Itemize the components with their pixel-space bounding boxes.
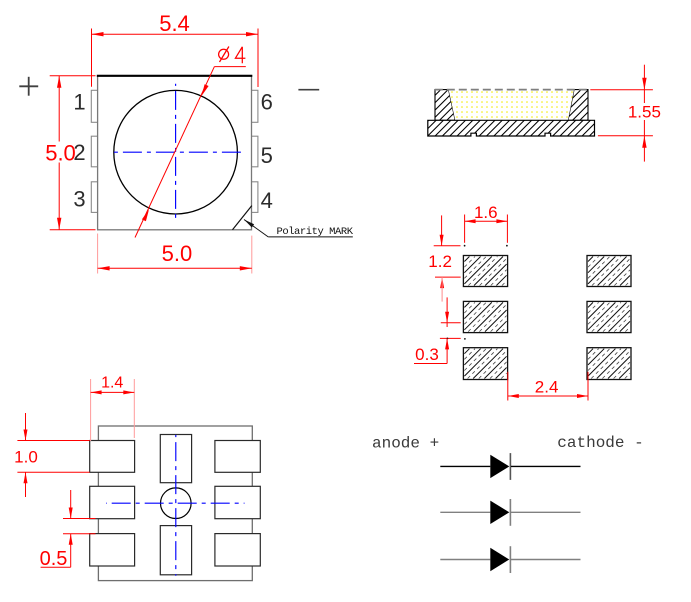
- svg-text:5: 5: [261, 143, 273, 168]
- svg-text:5.0: 5.0: [162, 241, 193, 266]
- svg-text:1: 1: [73, 89, 85, 114]
- svg-text:4: 4: [261, 188, 273, 213]
- svg-text:1.4: 1.4: [101, 375, 123, 392]
- svg-text:5.0: 5.0: [45, 140, 76, 165]
- svg-text:0.3: 0.3: [415, 345, 439, 364]
- svg-text:cathode -: cathode -: [557, 434, 643, 452]
- svg-text:anode +: anode +: [372, 435, 439, 453]
- svg-text:1.2: 1.2: [428, 252, 452, 271]
- svg-text:1.55: 1.55: [628, 103, 661, 122]
- svg-text:2.4: 2.4: [535, 378, 559, 397]
- svg-text:6: 6: [261, 90, 273, 115]
- svg-text:1.6: 1.6: [474, 203, 498, 222]
- svg-text:2: 2: [73, 140, 85, 165]
- svg-text:5.4: 5.4: [159, 11, 190, 36]
- svg-text:3: 3: [73, 186, 85, 211]
- svg-text:1.0: 1.0: [14, 448, 38, 467]
- svg-text:Polarity MARK: Polarity MARK: [277, 226, 354, 238]
